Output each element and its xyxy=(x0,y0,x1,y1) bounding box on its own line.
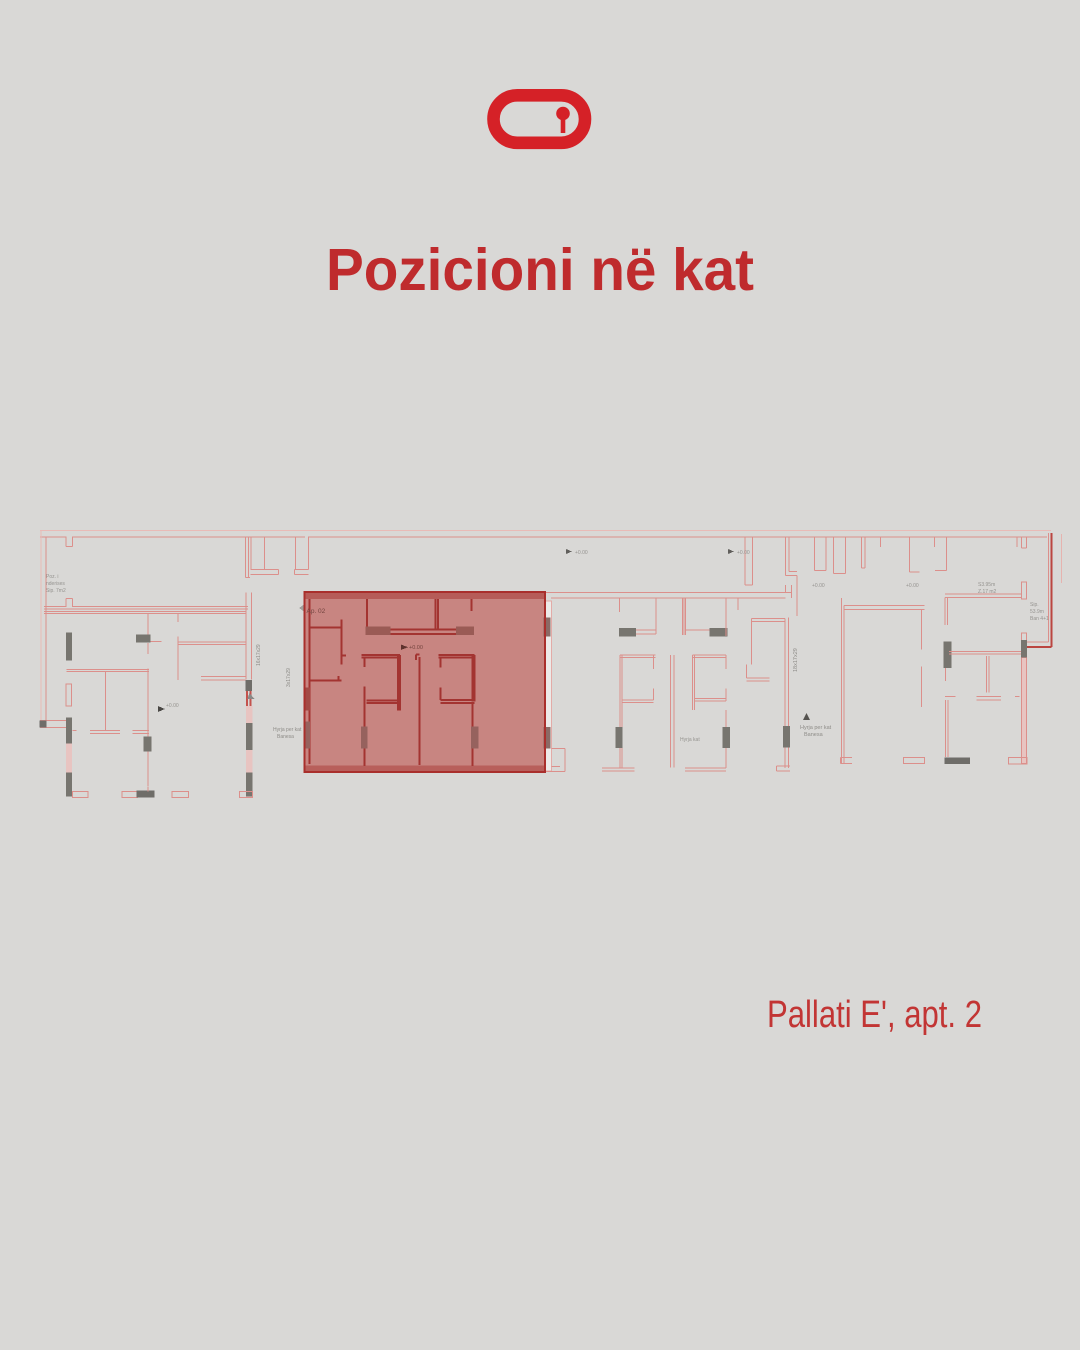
svg-text:Poz. i: Poz. i xyxy=(46,574,59,580)
svg-text:3x17x29: 3x17x29 xyxy=(286,668,292,687)
svg-text:Pallati E', apt. 2: Pallati E', apt. 2 xyxy=(767,994,982,1036)
svg-text:Hyrja per kat: Hyrja per kat xyxy=(273,727,302,733)
svg-text:+0.00: +0.00 xyxy=(166,703,179,709)
svg-text:Ban 4+1: Ban 4+1 xyxy=(1030,616,1049,622)
svg-text:18x17x29: 18x17x29 xyxy=(793,648,799,672)
svg-text:Z.17 m2: Z.17 m2 xyxy=(978,589,997,595)
svg-text:+0.00: +0.00 xyxy=(812,583,825,589)
svg-text:53.9m: 53.9m xyxy=(1030,609,1044,615)
svg-text:Banesa: Banesa xyxy=(277,734,294,740)
svg-text:16x17x29: 16x17x29 xyxy=(256,644,262,666)
svg-text:Ap. 02: Ap. 02 xyxy=(307,608,326,615)
svg-text:+0.00: +0.00 xyxy=(575,550,588,556)
svg-text:+0.00: +0.00 xyxy=(737,550,750,556)
svg-text:Sip.: Sip. xyxy=(1030,602,1039,608)
svg-text:nderises: nderises xyxy=(46,581,65,587)
svg-text:S3.95m: S3.95m xyxy=(978,582,995,588)
svg-text:Banesa: Banesa xyxy=(804,732,824,738)
svg-text:Hyrja kat: Hyrja kat xyxy=(680,737,700,743)
svg-text:+0.00: +0.00 xyxy=(409,645,423,651)
svg-text:Hyrja per kat: Hyrja per kat xyxy=(800,725,832,731)
svg-text:Pozicioni në kat: Pozicioni në kat xyxy=(326,237,754,303)
svg-text:+0.00: +0.00 xyxy=(906,583,919,589)
svg-text:Sip. 7m2: Sip. 7m2 xyxy=(46,588,66,594)
